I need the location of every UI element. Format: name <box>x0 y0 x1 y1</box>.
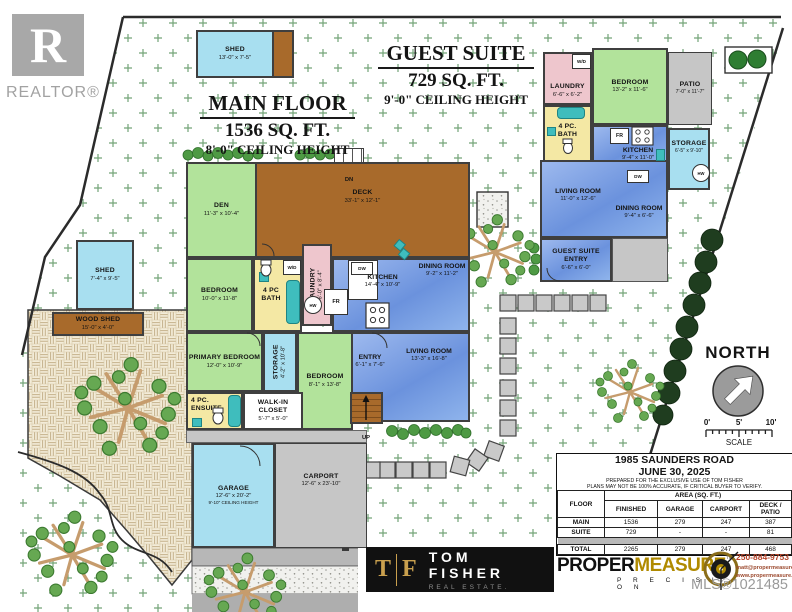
note-line2: PLANS MAY NOT BE 100% ACCURATE, IF CRITI… <box>558 484 792 491</box>
area-header: AREA (SQ. FT.) <box>605 491 792 501</box>
room-walk-in-closet: WALK-IN CLOSET 5'-7" x 5'-0" <box>243 392 303 430</box>
table-row-spacer <box>558 538 792 545</box>
entry-label: ENTRY 6'-1" x 7'-6" <box>350 354 390 369</box>
guest-suite-title: GUEST SUITE 729 SQ. FT. 9'-0" CEILING HE… <box>372 41 540 108</box>
shed-top: SHED 13'-0" x 7'-5" <box>196 30 274 78</box>
room-primary-bedroom: PRIMARY BEDROOM 12'-0" x 10'-9" <box>186 332 263 392</box>
rear-walkway <box>186 430 367 443</box>
scale-tick-10: 10' <box>762 418 780 427</box>
floor-plan-canvas: R REALTOR® MAIN FLOOR 1536 SQ. FT. 8'-0"… <box>0 0 792 612</box>
realtor-wordmark: REALTOR® <box>6 84 90 102</box>
room-garage: GARAGE 12'-6" x 20'-2" 9'-10" CEILING HE… <box>192 443 275 548</box>
sink-ensuite <box>192 418 202 427</box>
floor-header: FLOOR <box>558 491 605 518</box>
bathtub-ensuite <box>228 395 241 427</box>
north-label: NORTH <box>700 343 776 363</box>
stairs-up <box>350 392 383 424</box>
sink-guest-bath <box>547 127 556 136</box>
room-deck: DECK 33'-1" x 12'-1" <box>255 162 470 258</box>
washer-dryer-main: W/D <box>283 260 301 275</box>
dishwasher-guest: DW <box>627 170 649 183</box>
main-floor-title: MAIN FLOOR 1536 SQ. FT. 8'-0" CEILING HE… <box>185 91 370 158</box>
guest-patio: PATIO 7'-0" x 11'-7" <box>668 52 712 125</box>
tom-fisher-tagline: REAL ESTATE. <box>429 584 554 591</box>
deck-dn-label: DN <box>337 167 361 186</box>
north-compass-icon <box>713 366 763 416</box>
scale-ruler <box>706 430 772 437</box>
room-den: DEN 11'-3" x 10'-4" <box>186 162 257 258</box>
living-label: LIVING ROOM 13'-3" x 16'-8" <box>393 348 465 363</box>
table-row-suite: SUITE 729 - - 81 <box>558 528 792 538</box>
tom-fisher-logo: T F TOM FISHER REAL ESTATE. <box>366 547 554 592</box>
room-carport: CARPORT 12'-6" x 23'-10" <box>275 443 367 548</box>
sink-main-bath <box>259 272 269 282</box>
address: 1985 SAUNDERS ROAD <box>558 454 792 466</box>
shed-top-porch <box>272 30 294 78</box>
fridge-guest: FR <box>610 128 629 144</box>
area-info-table: 1985 SAUNDERS ROAD JUNE 30, 2025 PREPARE… <box>556 453 792 556</box>
mls-number: MLS®1021485 <box>660 577 788 593</box>
bathtub-guest <box>557 107 585 119</box>
room-bedroom2: BEDROOM 8'-1" x 13'-8" <box>297 332 353 430</box>
room-main-storage: STORAGE 4'-2" x 10'-8" <box>263 332 297 392</box>
guest-entry-walk <box>612 238 668 282</box>
scale-label: SCALE <box>712 438 766 447</box>
realtor-logo: R REALTOR® <box>12 14 90 102</box>
up-label: UP <box>354 425 378 444</box>
scale-tick-0: 0' <box>700 418 714 427</box>
guest-suite-entry: GUEST SUITE ENTRY 6'-6" x 6'-0" <box>540 238 612 282</box>
hot-water-tank-main: HW <box>304 296 322 314</box>
realtor-r-icon: R <box>12 14 84 76</box>
guest-dining-label: DINING ROOM 9'-4" x 6'-6" <box>610 205 668 220</box>
washer-dryer-guest: W/D <box>572 54 591 69</box>
bathtub-main <box>286 280 300 324</box>
table-row-main: MAIN 1536 279 247 387 <box>558 518 792 528</box>
room-bedroom: BEDROOM 10'-0" x 11'-8" <box>186 258 253 332</box>
dining-label: DINING ROOM 9'-2" x 11'-2" <box>413 263 471 278</box>
sink-guest-kitchen <box>656 149 665 161</box>
contact-phone: 250-884-9753 <box>736 551 792 564</box>
shed-left: SHED 7'-4" x 9'-5" <box>76 240 134 310</box>
guest-living-label: LIVING ROOM 11'-0" x 12'-6" <box>545 188 611 203</box>
plan-date: JUNE 30, 2025 <box>558 466 792 478</box>
kitchen-label: KITCHEN 14'-4" x 10'-9" <box>350 274 415 289</box>
contact-email: matt@propermeasure.com <box>736 564 792 572</box>
tom-fisher-name: TOM FISHER <box>429 549 554 581</box>
hot-water-tank-guest: HW <box>692 164 710 182</box>
wood-shed: WOOD SHED 15'-0" x 4'-0" <box>52 312 144 336</box>
fridge-main: FR <box>324 289 348 315</box>
scale-tick-5: 5' <box>732 418 746 427</box>
guest-bedroom: BEDROOM 13'-2" x 11'-6" <box>592 48 668 125</box>
tf-divider <box>396 554 397 586</box>
corner-planter <box>725 47 772 73</box>
